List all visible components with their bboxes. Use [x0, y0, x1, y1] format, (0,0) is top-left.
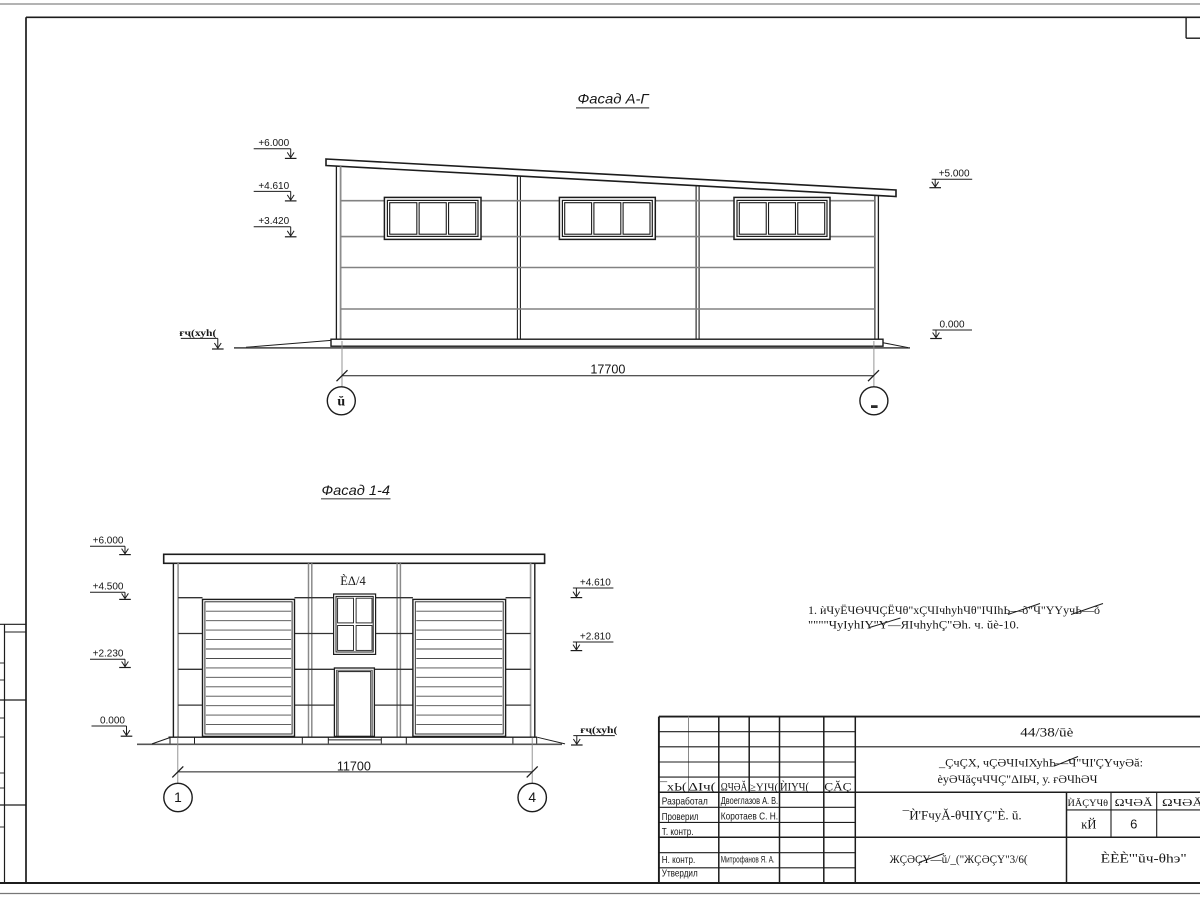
svg-text:+5.000: +5.000: [939, 169, 970, 180]
svg-text:¯хЬ(: ¯хЬ(: [659, 779, 687, 793]
svg-text:èуӘЧăçчЧЧÇ"ΔΙЬЧ, у. ғӘЧhӘЧ: èуӘЧăçчЧЧÇ"ΔΙЬЧ, у. ғӘЧhӘЧ: [938, 772, 1098, 786]
svg-text:Коротаев С. Н.: Коротаев С. Н.: [721, 811, 778, 822]
svg-text:ΩЧӘĂ: ΩЧӘĂ: [721, 779, 748, 793]
svg-text:ΩЧӘĂΙΥ: ΩЧӘĂΙΥ: [1162, 797, 1200, 809]
svg-text:Разработал: Разработал: [662, 795, 708, 807]
svg-text:+4.610: +4.610: [258, 181, 289, 192]
svg-text:ғҷ(хуһ(: ғҷ(хуһ(: [580, 725, 617, 736]
svg-text:+2.810: +2.810: [580, 631, 611, 642]
svg-text:1. ѝЧуЁЧӨЧЧÇЁЧθ"хÇЧΙчhуhЧθ"ΙЧΙ: 1. ѝЧуЁЧӨЧЧÇЁЧθ"хÇЧΙчhуhЧθ"ΙЧΙhЬ—õ"Ч"ΥΥу…: [808, 603, 1100, 617]
svg-text:6: 6: [1130, 817, 1137, 832]
svg-text:Фасад 1-4: Фасад 1-4: [322, 483, 391, 498]
svg-text:+4.610: +4.610: [580, 577, 611, 588]
svg-text:0.000: 0.000: [100, 715, 125, 726]
svg-text:ÈÈÈ'"ŭч-θhэ": ÈÈÈ'"ŭч-θhэ": [1101, 851, 1187, 865]
svg-text:ғҷ(хуһ(: ғҷ(хуһ(: [179, 328, 216, 339]
svg-text:_ÇчÇХ, чÇӘЧΙчΙХуhЬ—Ч"ЧΙ'ÇΥчуӘă: _ÇчÇХ, чÇӘЧΙчΙХуhЬ—Ч"ЧΙ'ÇΥчуӘă:: [938, 756, 1143, 770]
svg-text:Н. контр.: Н. контр.: [662, 855, 695, 866]
svg-text:ΔΙч(: ΔΙч(: [688, 779, 715, 793]
svg-text:Фасад А-Г: Фасад А-Г: [578, 91, 651, 106]
svg-text:ĸЙ: ĸЙ: [1081, 818, 1096, 832]
svg-text:17700: 17700: [590, 362, 625, 376]
svg-text:Двоеглазов А. В.: Двоеглазов А. В.: [721, 796, 778, 807]
svg-text:ÇĂÇ: ÇĂÇ: [824, 779, 851, 793]
svg-text:+3.420: +3.420: [258, 216, 289, 227]
svg-text:≥ΥΙЧ(: ≥ΥΙЧ(: [750, 782, 779, 793]
svg-text:ΩЧӘĂ: ΩЧӘĂ: [1115, 797, 1154, 809]
svg-text:4: 4: [528, 790, 536, 805]
svg-text:0.000: 0.000: [940, 319, 965, 330]
svg-text:ЖÇӘÇΥ—ŭ/_("ЖÇӘÇΥ"3/6(: ЖÇӘÇΥ—ŭ/_("ЖÇӘÇΥ"3/6(: [890, 852, 1028, 866]
svg-text:11700: 11700: [337, 760, 371, 774]
svg-text:+6.000: +6.000: [93, 536, 124, 547]
svg-text:Т. контр.: Т. контр.: [662, 827, 694, 838]
svg-text:""""ЧуΙуhΙΥ"Υ—ЯΙчhуhÇ"Әh. ч. ŭ: """"ЧуΙуhΙΥ"Υ—ЯΙчhуhÇ"Әh. ч. ŭè-10.: [808, 620, 1019, 632]
svg-text:+6.000: +6.000: [258, 138, 289, 149]
svg-text:ЍĂÇΥЧθ: ЍĂÇΥЧθ: [1068, 797, 1109, 809]
svg-text:ŭ: ŭ: [337, 395, 345, 410]
svg-text:ÈΔ/4: ÈΔ/4: [340, 574, 366, 588]
svg-text:Митрофанов Я. А.: Митрофанов Я. А.: [721, 855, 775, 865]
svg-text:+4.500: +4.500: [93, 582, 124, 593]
svg-text:Утвердил: Утвердил: [662, 869, 698, 880]
svg-text:1: 1: [174, 790, 182, 805]
svg-text:+2.230: +2.230: [93, 649, 124, 660]
svg-text:Проверил: Проверил: [662, 812, 699, 823]
svg-text:44/38/ūè: 44/38/ūè: [1020, 726, 1074, 740]
svg-text:ЍΙΥЧ(: ЍΙΥЧ(: [780, 779, 809, 793]
svg-text:¯Ѝ'FчуǍ-θЧΙΥÇ"È. ŭ.: ¯Ѝ'FчуǍ-θЧΙΥÇ"È. ŭ.: [902, 809, 1022, 823]
